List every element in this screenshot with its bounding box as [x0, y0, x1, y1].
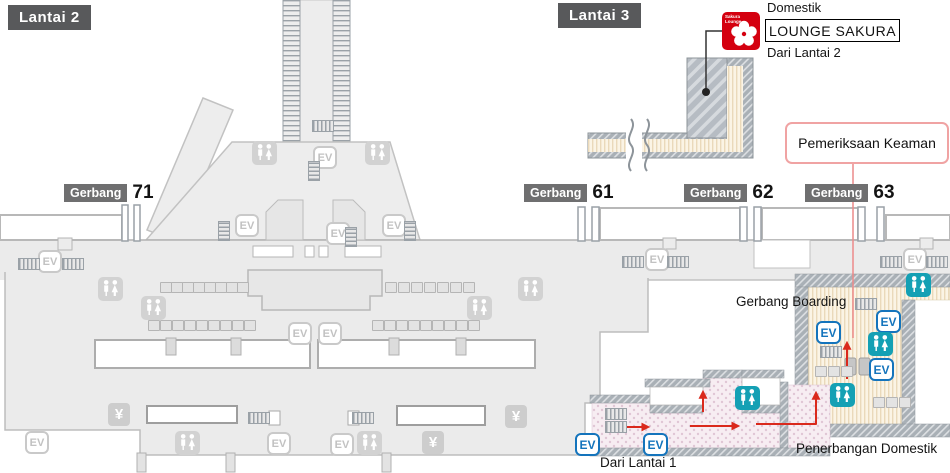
sakura-lounge-icon: SakuraLounge	[722, 12, 760, 50]
boarding-gate-label: Gerbang Boarding	[736, 294, 846, 309]
sakura-flower-icon	[729, 19, 759, 49]
domestik-label: Domestik	[767, 0, 821, 15]
security-check-callout: Pemeriksaan Keaman	[785, 122, 949, 164]
route-corridor	[590, 370, 830, 456]
from-floor-2-label: Dari Lantai 2	[767, 45, 841, 60]
from-floor-1-label: Dari Lantai 1	[600, 455, 677, 470]
lounge-sakura-label: LOUNGE SAKURA	[765, 19, 900, 42]
airport-terminal-map: EVEVEVEVEVEVEVEVEVEVEVEVEVEVEVEVEV¥¥¥ Ge…	[0, 0, 950, 473]
domestic-flights-label: Penerbangan Domestik	[796, 441, 937, 456]
lantai3-corridor	[588, 31, 753, 171]
floor-plan	[0, 0, 950, 473]
floor-2-badge: Lantai 2	[8, 5, 91, 30]
floor-3-badge: Lantai 3	[558, 3, 641, 28]
